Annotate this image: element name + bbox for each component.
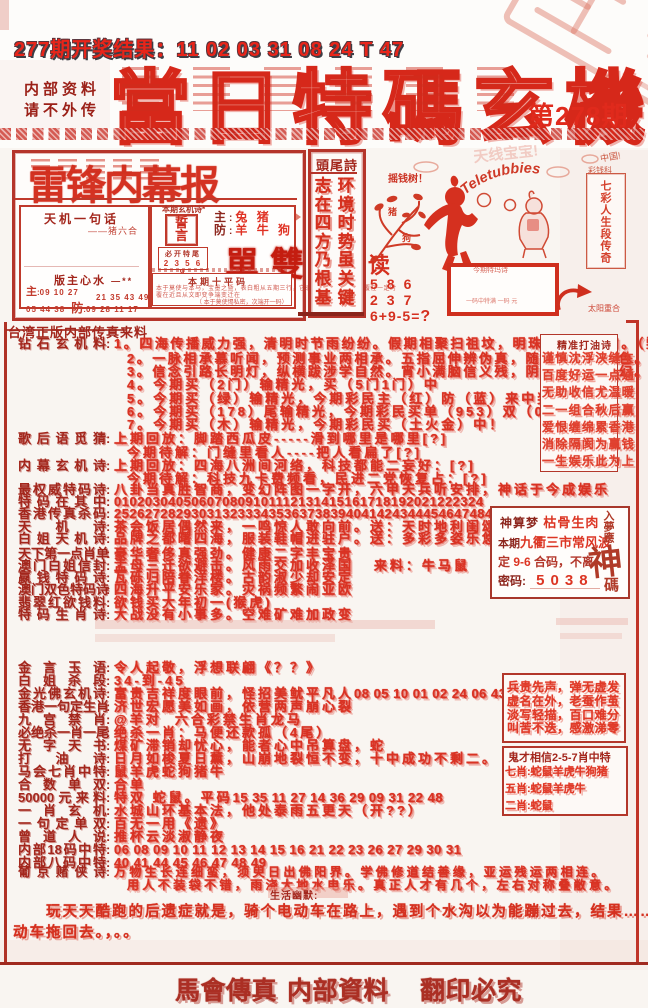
svg-text:狗: 狗 bbox=[402, 232, 411, 243]
svg-text:Teletubbies: Teletubbies bbox=[458, 161, 542, 198]
svg-text:猪: 猪 bbox=[387, 206, 397, 217]
